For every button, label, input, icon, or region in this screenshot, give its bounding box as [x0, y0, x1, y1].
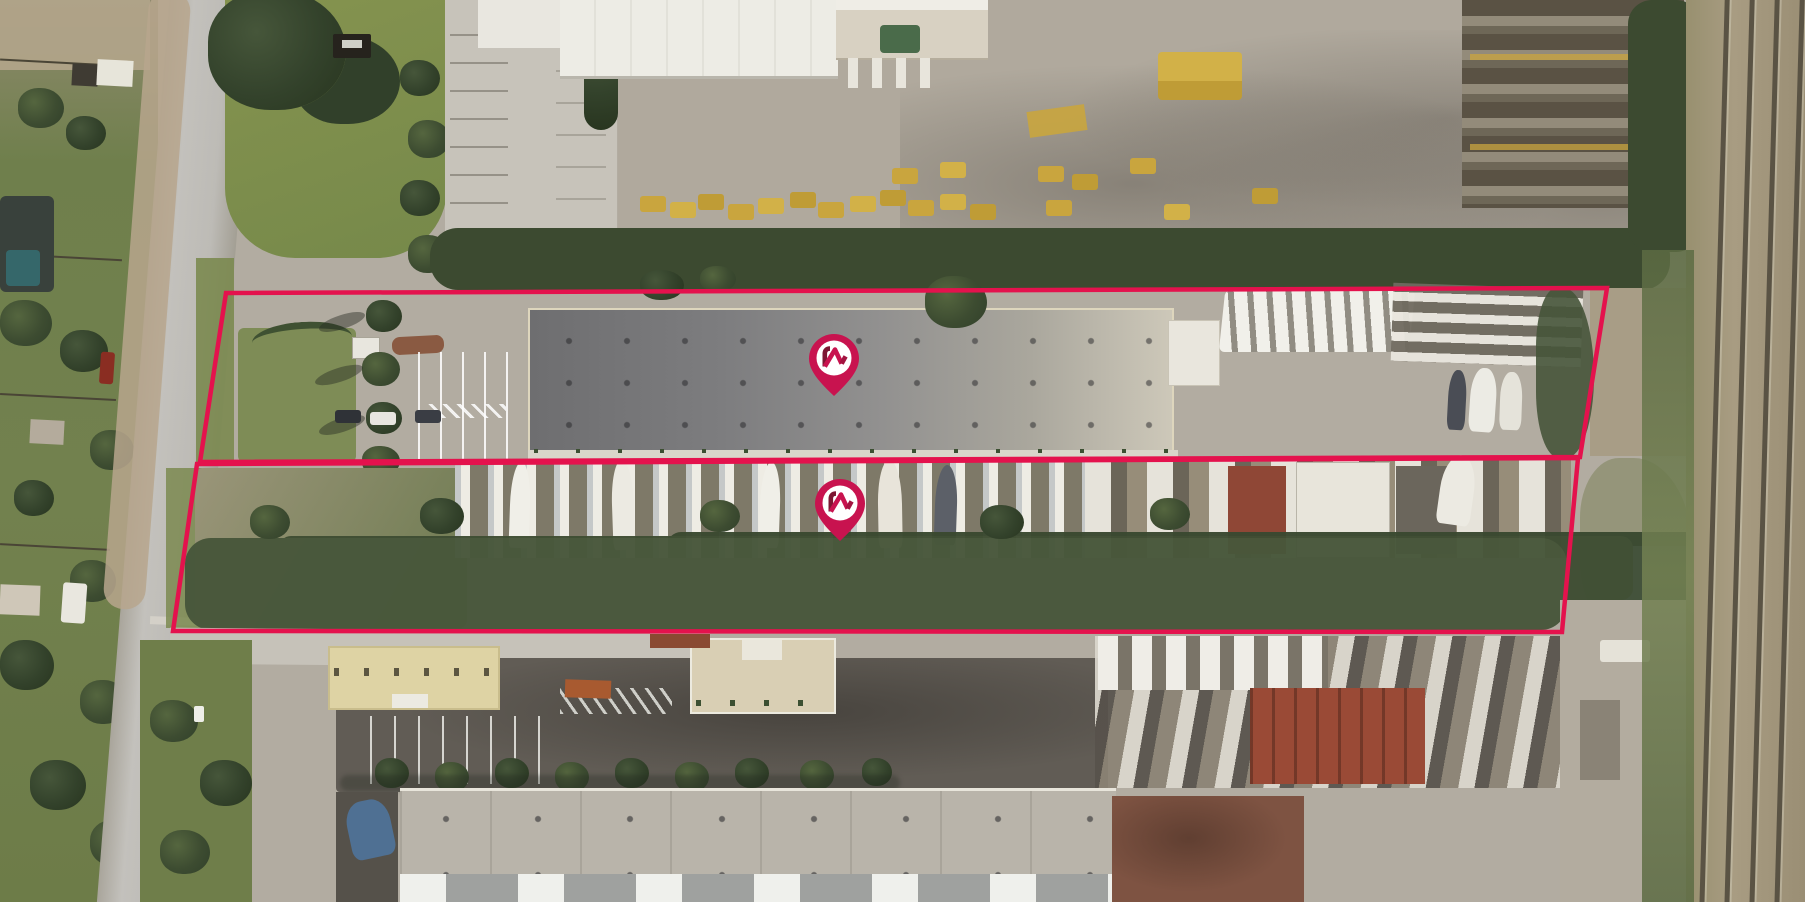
hedge-band-north [430, 228, 1670, 290]
grass-rail-strip [1642, 250, 1694, 902]
parked-car [370, 412, 396, 425]
shed-roof-white [96, 59, 133, 87]
tree-band-south [185, 538, 1567, 630]
shed-roof-dark [71, 63, 98, 86]
boat [1468, 367, 1498, 433]
industrial-roof-smooth [400, 874, 1116, 902]
tree [200, 760, 252, 806]
tree [1150, 498, 1190, 530]
entry-porch [392, 694, 428, 708]
tree [14, 480, 54, 516]
house-roof [29, 419, 64, 445]
palm [366, 300, 402, 332]
boat [1499, 372, 1523, 431]
palm [400, 60, 440, 96]
pin-graphic [808, 333, 860, 397]
white-canopy [1168, 320, 1220, 386]
boat [1446, 370, 1467, 431]
tree [420, 498, 464, 534]
palm [408, 120, 450, 158]
grass-strip [196, 258, 234, 463]
bay-doors [534, 449, 1174, 453]
signboard-text-patch [342, 40, 362, 48]
rust-roof-building [1112, 796, 1304, 902]
yellow-building-windows [334, 668, 490, 676]
yellow-paver [1158, 52, 1242, 100]
aerial-map-canvas [0, 0, 1805, 902]
tree [160, 830, 210, 874]
palm [400, 180, 440, 216]
white-vans-row [1219, 290, 1416, 352]
tree [250, 505, 290, 539]
red-containers [1250, 688, 1425, 784]
red-truck [99, 352, 115, 385]
white-warehouse-roof [560, 0, 838, 79]
tree [150, 700, 198, 742]
map-pin-south[interactable] [814, 478, 866, 542]
trailer [1580, 700, 1620, 780]
tree [18, 88, 64, 128]
tree [0, 300, 52, 346]
white-van [61, 582, 88, 624]
yellow-equipment-row [640, 196, 666, 212]
pool-water [6, 250, 40, 286]
white-building [478, 0, 566, 48]
tree [640, 270, 684, 300]
utility-pole-dot [194, 706, 204, 722]
pin-graphic [814, 478, 866, 542]
tree [30, 760, 86, 810]
tree [980, 505, 1024, 539]
parked-car [415, 410, 441, 423]
tan-building-doors [696, 700, 826, 706]
tree [700, 266, 736, 292]
tree [925, 276, 987, 328]
map-pin-north[interactable] [808, 333, 860, 397]
roof-patch-white [742, 640, 782, 660]
tree-cluster [208, 0, 346, 110]
rust-container [650, 634, 710, 648]
orange-container [565, 679, 612, 699]
house-roof [0, 584, 41, 615]
tree [66, 116, 106, 150]
palm [362, 352, 400, 386]
tree [700, 500, 740, 532]
green-machine [880, 25, 920, 53]
canopy-columns [848, 58, 940, 88]
parked-car [335, 410, 361, 423]
white-trucks-row [1098, 636, 1328, 690]
tree [0, 640, 54, 690]
hedge-patch [1536, 288, 1594, 458]
